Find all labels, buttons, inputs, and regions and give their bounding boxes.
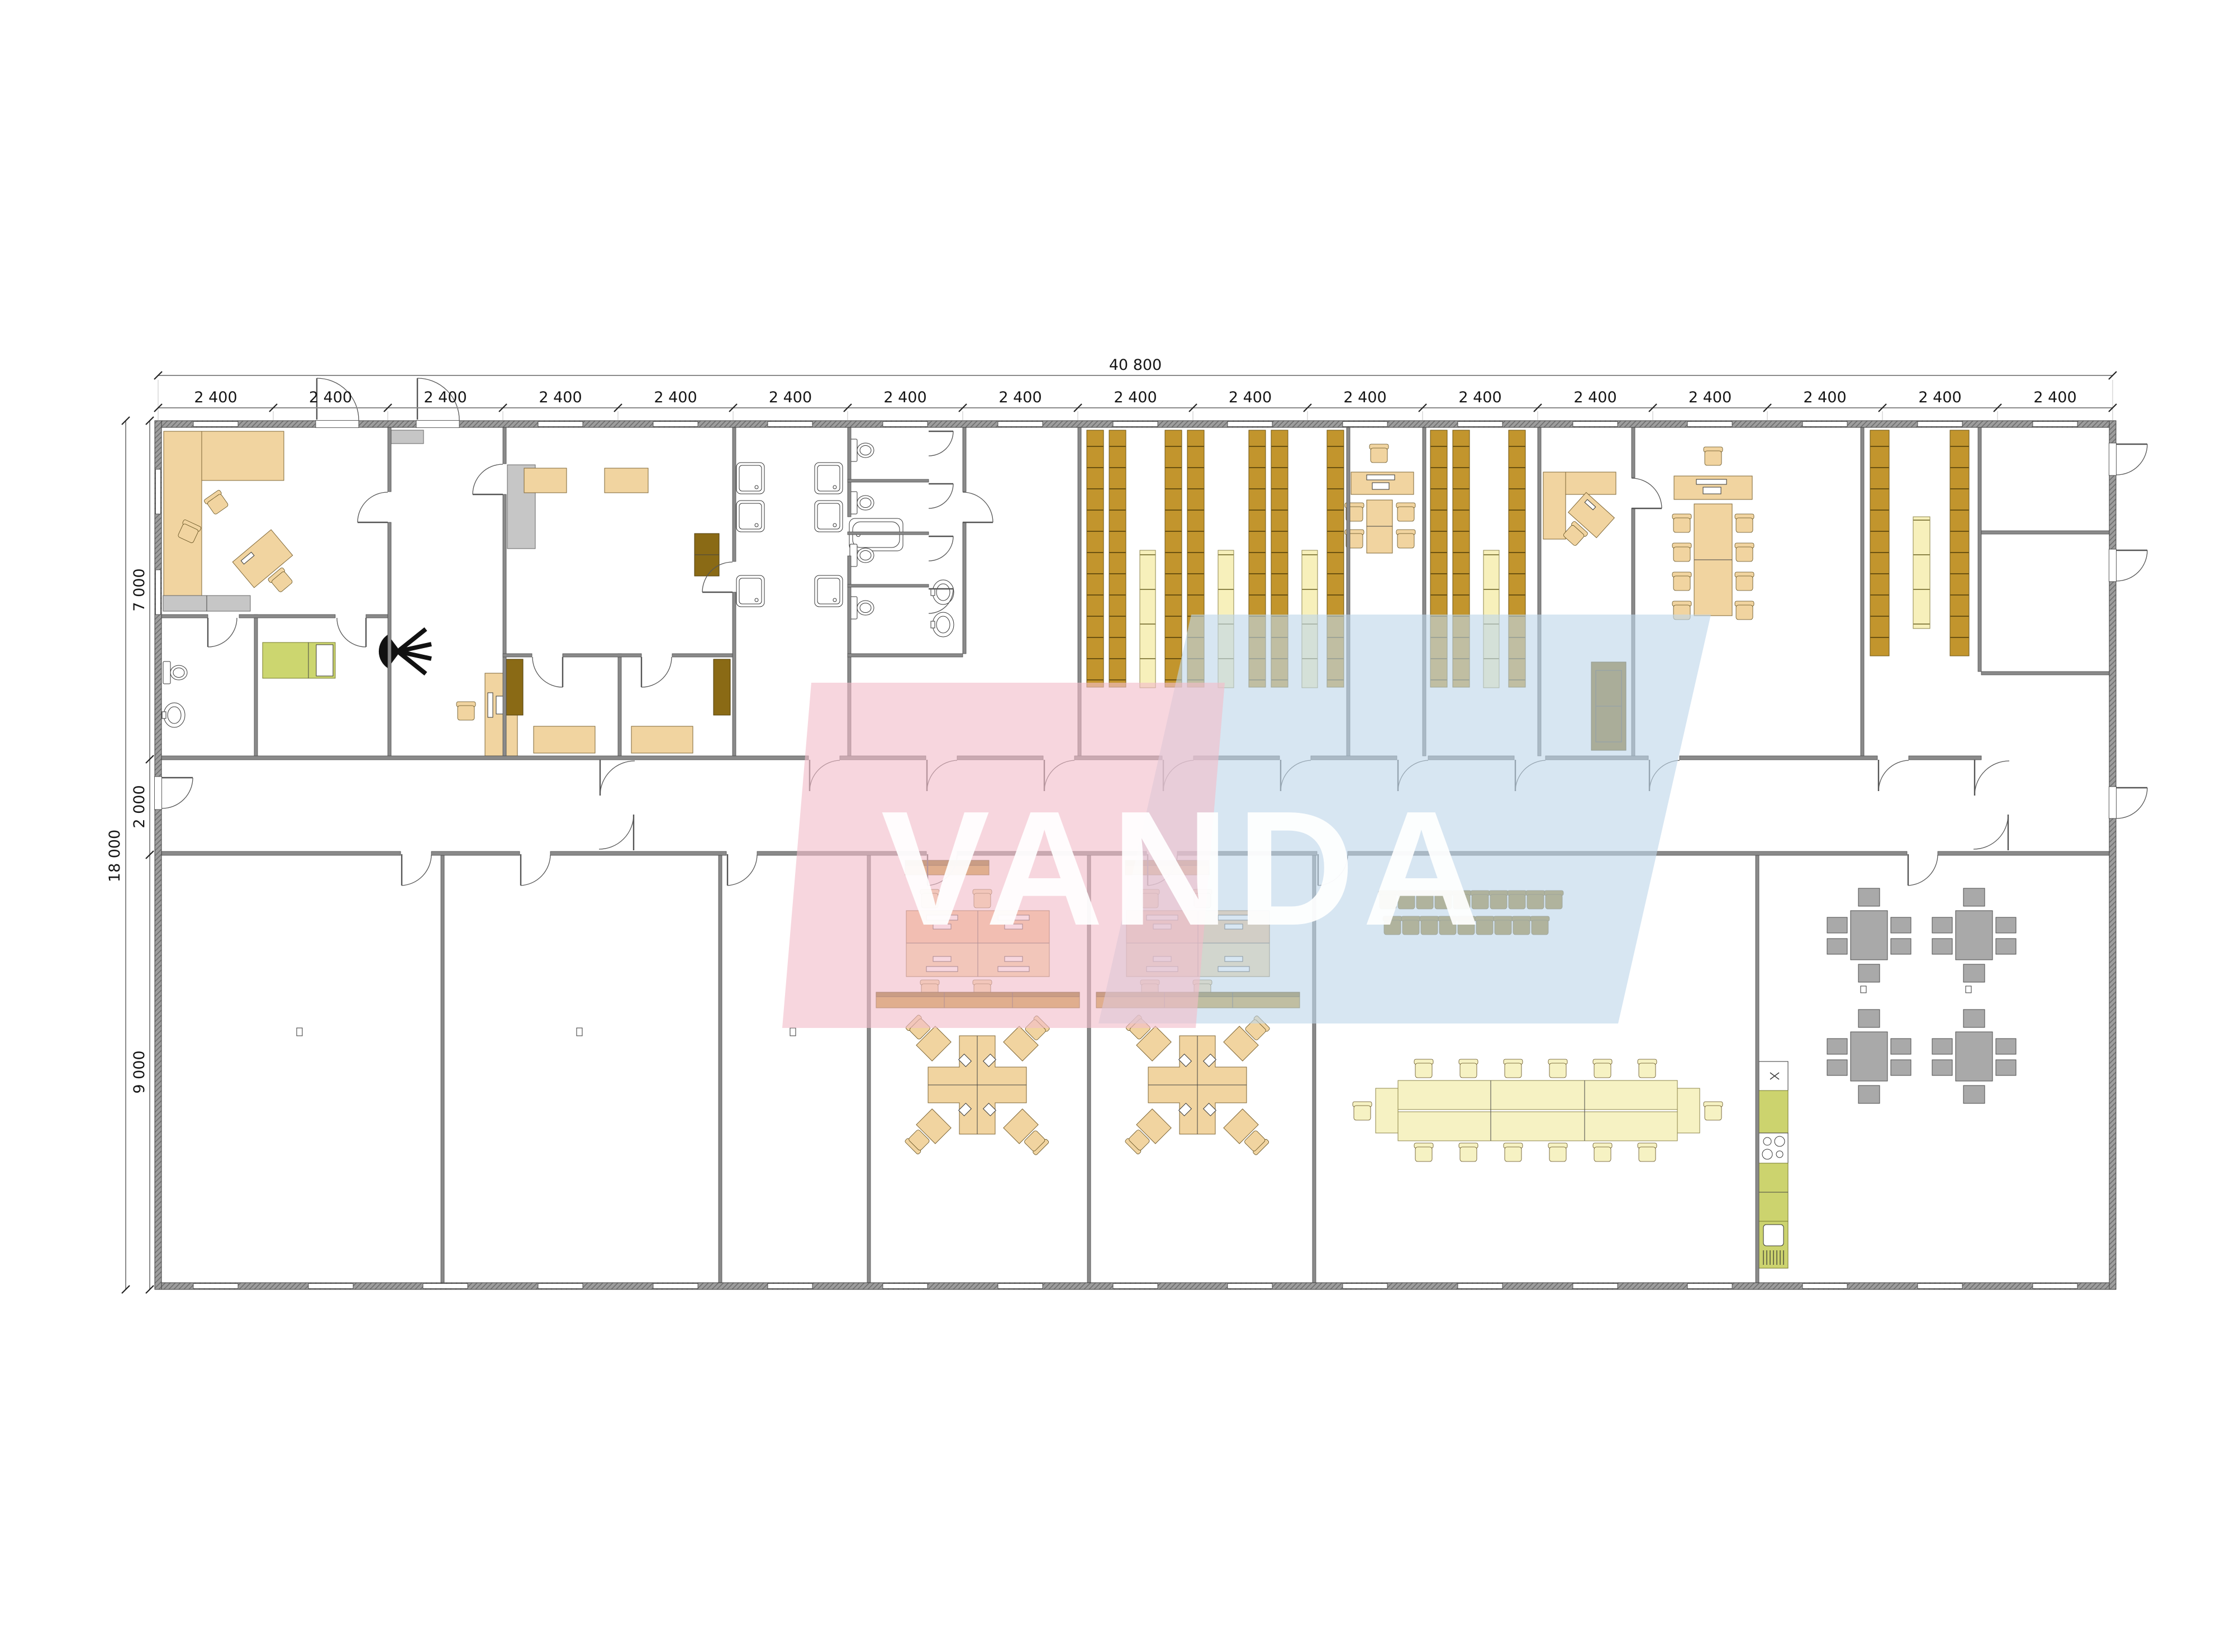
shower-icon xyxy=(815,575,843,607)
locker-column xyxy=(1913,517,1930,629)
top-segment-dim: 2 400 xyxy=(998,389,1042,406)
left-segment-dim: 7 000 xyxy=(131,568,148,611)
table-end xyxy=(1677,1088,1700,1133)
hall-chair xyxy=(456,702,475,720)
shelf-column xyxy=(1087,430,1104,687)
left-segment-dim: 2 000 xyxy=(131,785,148,828)
floor-marker xyxy=(297,1028,302,1036)
reception-l-desk-leg xyxy=(164,431,202,599)
kitchen-counter xyxy=(1759,1091,1788,1133)
top-segment-ticks xyxy=(154,404,2117,420)
top-segment-dim: 2 400 xyxy=(1458,389,1501,406)
shelf-column xyxy=(1165,430,1182,687)
kitchen-sink xyxy=(1763,1225,1784,1246)
left-window xyxy=(156,469,161,514)
floor-marker xyxy=(577,1028,582,1036)
dimensions-top: 40 800 2 4002 4002 4002 4002 4002 4002 4… xyxy=(154,356,2117,420)
table-end xyxy=(1376,1088,1398,1133)
top-segment-dim: 2 400 xyxy=(1114,389,1157,406)
lounge-table xyxy=(524,468,567,493)
shower-icon xyxy=(736,463,764,494)
long-table xyxy=(1398,1080,1677,1110)
cooktop xyxy=(1759,1133,1788,1163)
top-segment-dim: 2 400 xyxy=(2033,389,2076,406)
shower-icon xyxy=(736,575,764,607)
dimensions-left: 18 000 7 0002 0009 000 xyxy=(106,417,154,1293)
small-room-cabinet xyxy=(714,659,730,715)
top-segment-labels: 2 4002 4002 4002 4002 4002 4002 4002 400… xyxy=(194,389,2076,406)
top-segment-dim: 2 400 xyxy=(194,389,237,406)
small-room-table xyxy=(534,726,595,753)
fridge xyxy=(1759,1061,1788,1091)
small-room-cabinet xyxy=(506,659,523,715)
floor-plan-canvas: 40 800 2 4002 4002 4002 4002 4002 4002 4… xyxy=(0,0,2235,1652)
small-room-table xyxy=(631,726,693,753)
left-segment-labels: 7 0002 0009 000 xyxy=(131,568,148,1093)
top-segment-dim: 2 400 xyxy=(654,389,697,406)
top-segment-dim: 2 400 xyxy=(539,389,582,406)
top-segment-dim: 2 400 xyxy=(1343,389,1386,406)
watermark-text: VANDA xyxy=(881,777,1489,959)
shower-icon xyxy=(736,501,764,532)
floor-marker xyxy=(1861,986,1866,993)
l-desk-leg xyxy=(1543,472,1566,539)
top-segment-dim: 2 400 xyxy=(309,389,352,406)
left-window xyxy=(156,570,161,615)
shower-icon xyxy=(815,463,843,494)
top-segment-dim: 2 400 xyxy=(424,389,467,406)
top-segment-dim: 2 400 xyxy=(1689,389,1732,406)
locker-column xyxy=(1140,550,1155,688)
top-segment-dim: 2 400 xyxy=(1918,389,1961,406)
entry-mat xyxy=(391,430,424,444)
top-segment-dim: 2 400 xyxy=(769,389,812,406)
top-segment-dim: 2 400 xyxy=(883,389,926,406)
daybed-pillow xyxy=(316,645,333,676)
lounge-table xyxy=(605,468,648,493)
long-table xyxy=(1398,1112,1677,1141)
shelf-column xyxy=(1950,430,1969,656)
floor-plan-page: 40 800 2 4002 4002 4002 4002 4002 4002 4… xyxy=(0,0,2235,1652)
shower-icon xyxy=(815,501,843,532)
top-segment-dim: 2 400 xyxy=(1229,389,1272,406)
office-chair xyxy=(1369,444,1388,463)
total-width-dim: 40 800 xyxy=(1109,356,1162,374)
shelf-column xyxy=(1109,430,1126,687)
floor-marker xyxy=(1966,986,1971,993)
conference-chair xyxy=(1704,447,1723,465)
top-segment-dim: 2 400 xyxy=(1803,389,1846,406)
total-height-dim: 18 000 xyxy=(106,830,123,882)
floor-marker xyxy=(790,1028,796,1036)
left-segment-dim: 9 000 xyxy=(131,1050,148,1093)
shelf-column xyxy=(1870,430,1889,656)
top-segment-dim: 2 400 xyxy=(1573,389,1616,406)
